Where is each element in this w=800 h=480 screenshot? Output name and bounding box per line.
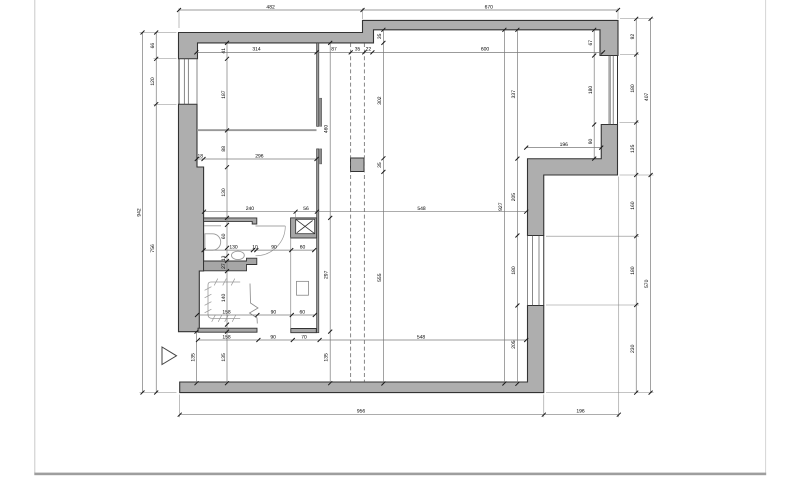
svg-text:88: 88 bbox=[221, 146, 227, 152]
svg-text:555: 555 bbox=[377, 273, 383, 282]
svg-text:90: 90 bbox=[588, 139, 594, 145]
svg-text:60: 60 bbox=[300, 244, 306, 250]
svg-text:187: 187 bbox=[221, 90, 227, 99]
svg-text:90: 90 bbox=[271, 309, 277, 315]
svg-text:670: 670 bbox=[485, 5, 494, 11]
svg-text:135: 135 bbox=[324, 353, 330, 362]
svg-text:927: 927 bbox=[498, 202, 504, 211]
svg-text:22: 22 bbox=[366, 47, 372, 53]
svg-text:90: 90 bbox=[270, 334, 276, 340]
svg-text:92: 92 bbox=[630, 34, 636, 40]
svg-text:337: 337 bbox=[511, 90, 517, 99]
svg-text:60: 60 bbox=[300, 309, 306, 315]
svg-text:548: 548 bbox=[417, 206, 426, 212]
svg-text:130: 130 bbox=[229, 244, 238, 250]
svg-text:407: 407 bbox=[644, 93, 650, 102]
svg-text:87: 87 bbox=[331, 47, 337, 53]
svg-text:756: 756 bbox=[150, 244, 156, 253]
svg-text:180: 180 bbox=[588, 86, 594, 95]
svg-text:302: 302 bbox=[377, 96, 383, 105]
svg-text:240: 240 bbox=[246, 206, 255, 212]
svg-text:130: 130 bbox=[221, 188, 227, 197]
svg-text:60: 60 bbox=[221, 233, 227, 239]
svg-text:120: 120 bbox=[150, 77, 156, 86]
svg-text:135: 135 bbox=[630, 144, 636, 153]
svg-text:956: 956 bbox=[357, 409, 366, 415]
svg-text:570: 570 bbox=[644, 279, 650, 288]
svg-text:35: 35 bbox=[355, 47, 361, 53]
svg-text:140: 140 bbox=[221, 294, 227, 303]
svg-text:297: 297 bbox=[324, 270, 330, 279]
svg-text:66: 66 bbox=[150, 43, 156, 49]
svg-text:56: 56 bbox=[303, 206, 309, 212]
svg-text:482: 482 bbox=[266, 5, 275, 11]
svg-text:160: 160 bbox=[630, 201, 636, 210]
svg-text:158: 158 bbox=[222, 309, 231, 315]
svg-text:90: 90 bbox=[271, 244, 277, 250]
svg-text:196: 196 bbox=[576, 409, 585, 415]
svg-text:158: 158 bbox=[222, 334, 231, 340]
svg-text:296: 296 bbox=[255, 153, 264, 159]
svg-text:18: 18 bbox=[198, 153, 204, 159]
svg-text:196: 196 bbox=[560, 142, 569, 148]
svg-text:35: 35 bbox=[377, 162, 383, 168]
svg-text:180: 180 bbox=[630, 266, 636, 275]
svg-text:13: 13 bbox=[221, 255, 227, 261]
svg-text:600: 600 bbox=[481, 47, 490, 53]
svg-text:548: 548 bbox=[417, 334, 426, 340]
svg-text:135: 135 bbox=[190, 353, 196, 362]
svg-text:230: 230 bbox=[630, 344, 636, 353]
svg-text:314: 314 bbox=[252, 47, 261, 53]
svg-text:70: 70 bbox=[301, 334, 307, 340]
svg-text:27: 27 bbox=[221, 263, 227, 269]
svg-text:460: 460 bbox=[324, 125, 330, 134]
svg-text:35: 35 bbox=[377, 33, 383, 39]
svg-text:205: 205 bbox=[511, 340, 517, 349]
svg-text:41: 41 bbox=[221, 48, 227, 54]
svg-text:180: 180 bbox=[511, 266, 517, 275]
svg-text:942: 942 bbox=[136, 208, 142, 217]
svg-text:205: 205 bbox=[511, 193, 517, 202]
svg-text:180: 180 bbox=[630, 84, 636, 93]
svg-text:135: 135 bbox=[221, 353, 227, 362]
svg-text:67: 67 bbox=[588, 40, 594, 46]
svg-text:10: 10 bbox=[252, 244, 258, 250]
